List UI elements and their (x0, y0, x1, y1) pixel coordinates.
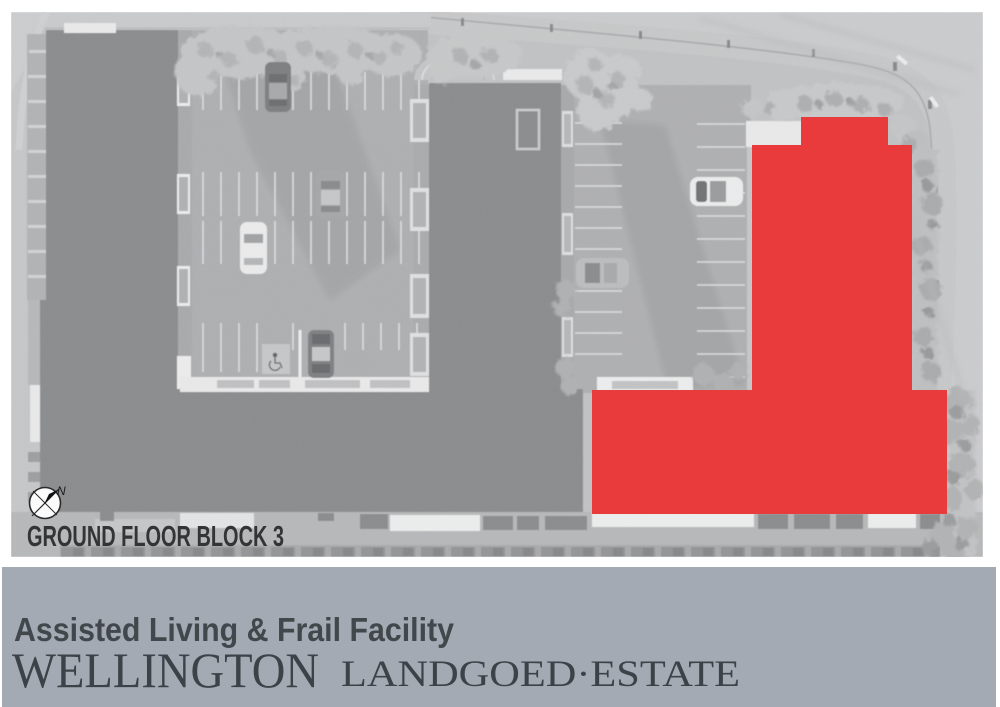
svg-text:LANDGOED·ESTATE: LANDGOED·ESTATE (341, 654, 740, 695)
svg-text:WELLINGTON: WELLINGTON (12, 642, 319, 698)
svg-text:N: N (57, 484, 66, 498)
svg-text:GROUND FLOOR BLOCK 3: GROUND FLOOR BLOCK 3 (27, 521, 284, 553)
